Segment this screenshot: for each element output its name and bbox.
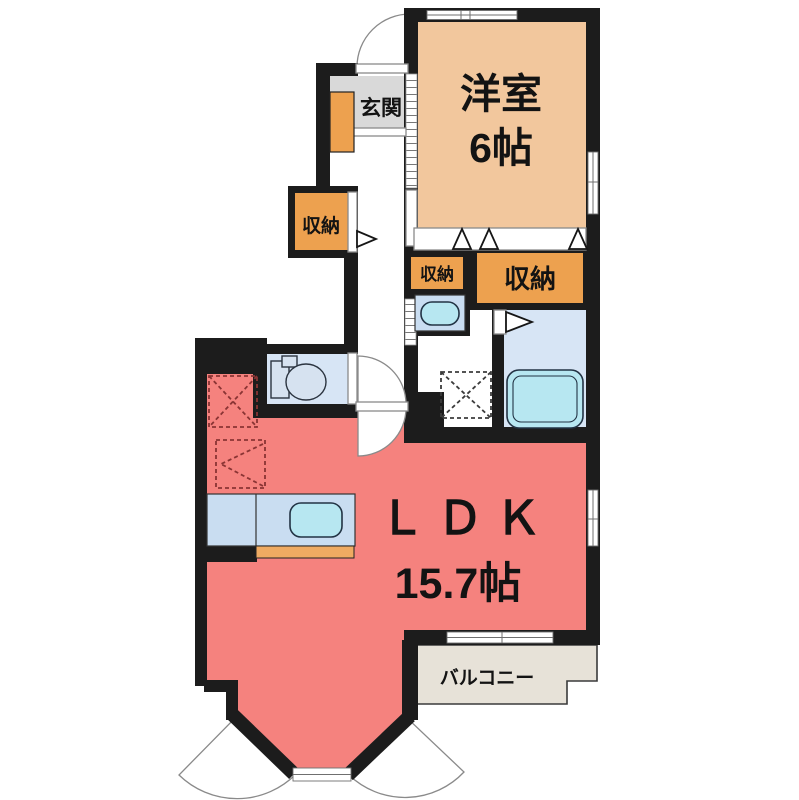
ldk-label: ＬＤＫ [379, 492, 553, 544]
hall-closet-label: 収納 [302, 214, 340, 237]
wall-hall-west [344, 250, 358, 354]
wall-right [586, 8, 600, 645]
closet-wide-label: 収納 [504, 264, 556, 294]
toilet-door-leaf [348, 353, 357, 404]
bedroom-top-window [427, 11, 517, 20]
wall-toilet-west [253, 344, 267, 406]
wall-ldk-se [402, 640, 418, 720]
balcony-label: バルコニー [440, 667, 535, 689]
closet-doors-strip [414, 228, 586, 250]
hall-ldk-door-leaf [356, 402, 408, 411]
wall-toilet-north [253, 344, 358, 354]
bedroom-floor [414, 16, 588, 232]
floorplan-drawing: 洋室 6帖 玄関 収納 収納 収納 ＬＤＫ 15.7帖 バルコニー [0, 0, 799, 800]
wall-toilet-south [253, 404, 358, 418]
kitchen-counter-edge [256, 546, 354, 558]
kitchen-sink [290, 503, 342, 537]
washroom-sliding-door [405, 299, 416, 345]
ldk-size-label: 15.7帖 [395, 560, 522, 608]
closet-small-label: 収納 [420, 264, 454, 284]
bathtub [507, 370, 583, 428]
hall-closet-door [348, 192, 357, 252]
wall-washroom-sw-corner [404, 392, 444, 430]
washbasin-sink [421, 302, 459, 325]
entrance-label: 玄関 [360, 96, 402, 120]
bedroom-east-window [588, 152, 598, 214]
entrance-door-leaf [356, 64, 408, 73]
ldk-east-window [588, 490, 598, 546]
bay-bottom-window [293, 768, 351, 781]
wall-entrance-west [316, 63, 330, 189]
wall-ldk-west [195, 338, 207, 686]
floorplan-page: 洋室 6帖 玄関 収納 収納 収納 ＬＤＫ 15.7帖 バルコニー [0, 0, 799, 800]
bedroom-size-label: 6帖 [469, 125, 533, 171]
bedroom-sliding-door-pocket [406, 74, 417, 188]
shoe-cabinet [330, 92, 354, 152]
bedroom-label: 洋室 [460, 71, 542, 117]
entrance-step [352, 128, 406, 136]
ldk-south-window [447, 632, 553, 643]
